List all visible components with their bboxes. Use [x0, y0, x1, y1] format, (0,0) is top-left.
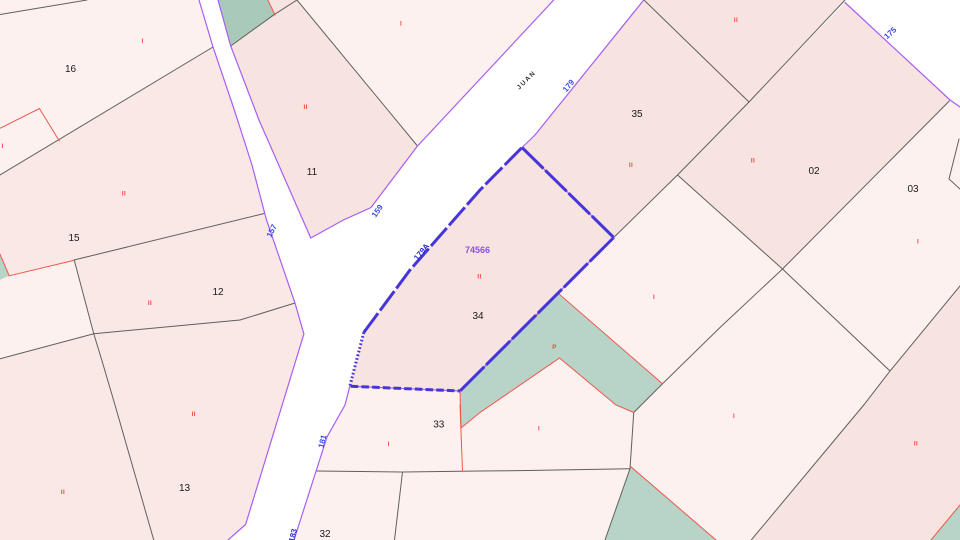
svg-text:15: 15	[68, 233, 80, 244]
svg-text:II: II	[734, 17, 738, 24]
svg-text:I: I	[733, 413, 735, 420]
svg-text:II: II	[303, 104, 307, 111]
svg-text:I: I	[917, 239, 919, 246]
svg-text:I: I	[388, 441, 390, 448]
svg-text:II: II	[192, 411, 196, 418]
svg-text:03: 03	[907, 184, 919, 195]
svg-text:II: II	[914, 441, 918, 448]
svg-text:P: P	[552, 344, 557, 351]
svg-text:33: 33	[433, 420, 445, 431]
svg-text:II: II	[148, 300, 152, 307]
svg-text:II: II	[122, 191, 126, 198]
svg-text:35: 35	[631, 109, 643, 120]
svg-text:I: I	[653, 294, 655, 301]
svg-text:74566: 74566	[465, 245, 490, 255]
svg-text:I: I	[1, 143, 3, 150]
svg-text:02: 02	[808, 166, 820, 177]
svg-text:16: 16	[65, 64, 77, 75]
svg-text:11: 11	[307, 167, 318, 178]
svg-text:I: I	[400, 21, 402, 28]
svg-text:II: II	[751, 158, 755, 165]
svg-text:I: I	[538, 426, 540, 433]
svg-text:I: I	[141, 38, 143, 45]
svg-text:12: 12	[212, 287, 224, 298]
svg-text:II: II	[629, 162, 633, 169]
svg-text:II: II	[61, 489, 65, 496]
svg-text:34: 34	[472, 311, 484, 322]
svg-text:32: 32	[319, 529, 331, 540]
svg-text:13: 13	[179, 483, 191, 494]
svg-text:II: II	[477, 274, 481, 281]
